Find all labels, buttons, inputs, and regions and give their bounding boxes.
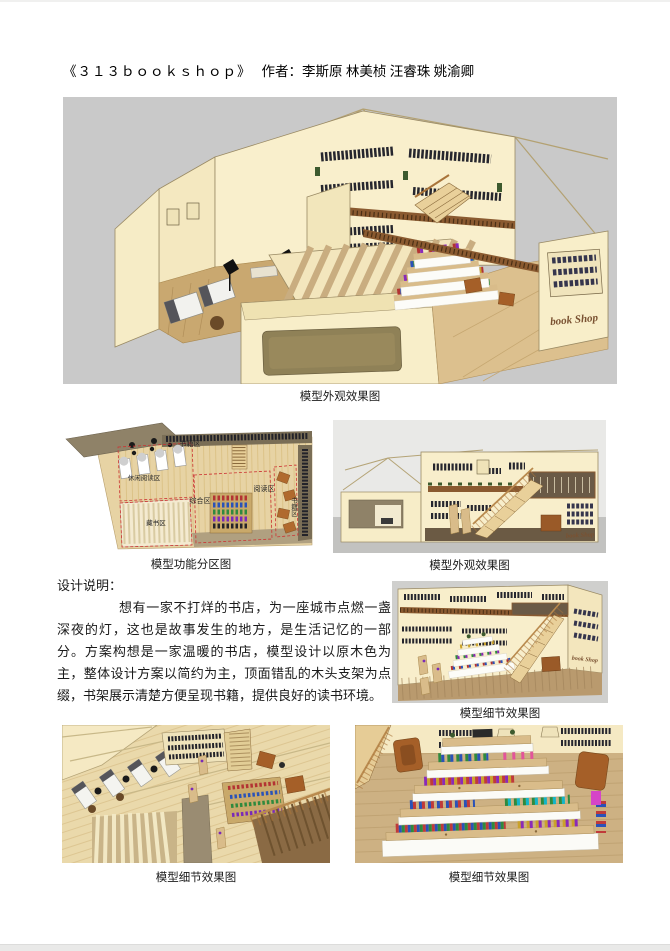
design-description-heading: 设计说明： [57, 575, 391, 597]
zone-label-reading: 阅读区 [254, 484, 275, 493]
figure-model-detail-left [62, 725, 330, 863]
detail2-stairs-top [224, 729, 252, 771]
project-title: 《３１３ｂｏｏｋｓｈｏｐ》 [63, 64, 252, 79]
caption-floor-plan: 模型功能分区图 [62, 556, 320, 572]
figure-floor-plan: 书籍区 休闲阅读区 藏书区 综合区 阅读区 书籍区 [62, 417, 320, 553]
figure-model-exterior-side: book Shop [333, 420, 606, 553]
caption-detail-left: 模型细节效果图 [62, 869, 330, 885]
floor-plan-illustration: 书籍区 休闲阅读区 藏书区 综合区 阅读区 书籍区 [62, 417, 320, 553]
model-elevation-illustration: book Shop [333, 420, 606, 553]
zone-label-leisure-reading: 休闲阅读区 [128, 473, 161, 482]
figure-model-detail-right [355, 725, 623, 863]
page-top-edge [0, 0, 670, 2]
design-description: 设计说明： 想有一家不打烊的书店，为一座城市点燃一盏深夜的灯，这也是故事发生的地… [57, 575, 391, 707]
authors-line: 作者：李斯原 林美桢 汪睿珠 姚渝卿 [262, 64, 475, 79]
caption-main-render: 模型外观效果图 [63, 388, 617, 404]
zone-label-books-top: 书籍区 [180, 439, 201, 448]
caption-detail-right: 模型细节效果图 [355, 869, 623, 885]
caption-detail-mid: 模型细节效果图 [392, 705, 608, 721]
model-detail-illustration-2 [62, 725, 330, 863]
figure-model-detail-mid: book Shop [392, 581, 608, 703]
model-detail-illustration-1: book Shop [392, 581, 608, 703]
page-bottom-edge [0, 944, 670, 951]
zone-label-mixed: 综合区 [190, 496, 211, 505]
figure-model-exterior-main: book Shop [63, 97, 617, 384]
plan-center-display [210, 493, 252, 533]
model-detail-illustration-3 [355, 725, 623, 863]
model-exterior-render-illustration: book Shop [63, 97, 617, 384]
caption-elevation: 模型外观效果图 [333, 557, 606, 573]
page-title: 《３１３ｂｏｏｋｓｈｏｐ》作者：李斯原 林美桢 汪睿珠 姚渝卿 [63, 60, 474, 80]
zone-label-storage: 藏书区 [146, 518, 166, 527]
design-description-body: 想有一家不打烊的书店，为一座城市点燃一盏深夜的灯，这也是故事发生的地方，是生活记… [57, 597, 391, 707]
presentation-board-page: 《３１３ｂｏｏｋｓｈｏｐ》作者：李斯原 林美桢 汪睿珠 姚渝卿 [0, 0, 670, 951]
